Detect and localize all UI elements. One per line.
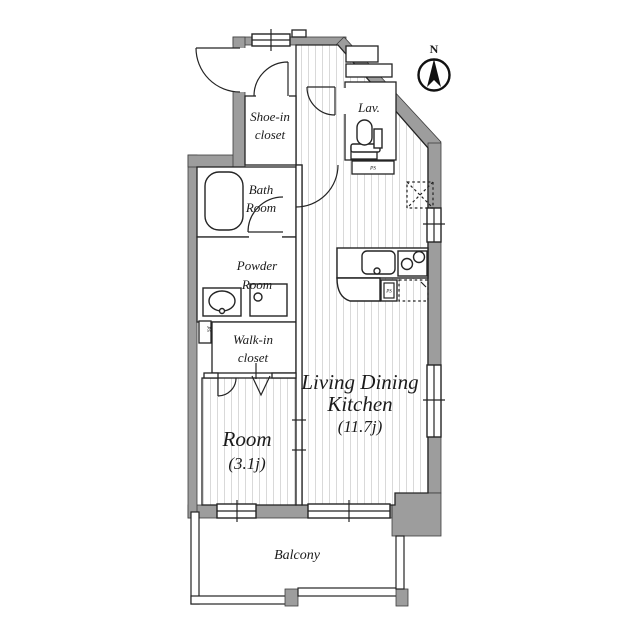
ldk-label-1: Living Dining bbox=[300, 370, 418, 394]
storage-box-lower bbox=[346, 64, 392, 77]
bath-door-gap bbox=[249, 235, 282, 240]
bath-room-label-1: Bath bbox=[249, 182, 274, 197]
balcony-rail-right bbox=[396, 536, 404, 589]
powder-room-label-1: Powder bbox=[236, 258, 278, 273]
washbasin-faucet-icon bbox=[220, 309, 225, 314]
walk-in-closet-label-2: closet bbox=[238, 350, 269, 365]
ldk-size-label: (11.7j) bbox=[338, 417, 383, 436]
storage-box-upper bbox=[346, 46, 378, 62]
counter-return bbox=[337, 278, 380, 301]
wall-right bbox=[428, 143, 441, 493]
balcony-post-left bbox=[285, 589, 298, 606]
washing-machine-knob-icon bbox=[254, 293, 262, 301]
room-ldk-wall bbox=[296, 165, 302, 505]
balcony-label: Balcony bbox=[274, 548, 321, 563]
powder-room-label-2: Room bbox=[241, 277, 272, 292]
ps-shaft-left bbox=[199, 321, 211, 343]
ps-label-kitchen: PS bbox=[385, 290, 392, 295]
bathtub-icon bbox=[205, 172, 243, 230]
walk-in-closet-room bbox=[212, 322, 296, 373]
toilet-tank-icon bbox=[374, 129, 382, 148]
ldk-label-2: Kitchen bbox=[326, 392, 392, 416]
room-top-wall-left bbox=[204, 373, 218, 378]
wall-left-lower bbox=[188, 155, 197, 518]
lav-label: Lav. bbox=[357, 100, 380, 115]
shoe-in-closet-label-1: Shoe-in bbox=[250, 109, 290, 124]
toilet-bowl-icon bbox=[357, 120, 372, 145]
lav-door-gap bbox=[343, 88, 348, 114]
room-label: Room bbox=[222, 427, 272, 451]
kitchen-faucet-icon bbox=[374, 268, 380, 274]
north-label: N bbox=[430, 42, 439, 56]
ps-label-lav: PS bbox=[369, 166, 376, 172]
entrance-door-gap bbox=[231, 48, 247, 92]
stove-burner-2-icon bbox=[414, 252, 425, 263]
wall-bottom-right-mass bbox=[392, 493, 441, 536]
room-top-wall-right bbox=[272, 373, 296, 378]
walk-in-closet-label-1: Walk-in bbox=[233, 332, 273, 347]
shoe-closet-door-gap bbox=[256, 94, 289, 99]
stove-burner-1-icon bbox=[402, 259, 413, 270]
bath-room-label-2: Room bbox=[245, 200, 276, 215]
ps-label-left: PS bbox=[205, 325, 210, 332]
floor-plan-svg: N Shoe-in closet Lav. Bath Room Powder R… bbox=[0, 0, 640, 640]
balcony-rail-bottom-left bbox=[191, 596, 288, 604]
balcony-rail-left bbox=[191, 512, 199, 604]
balcony-rail-bottom-right bbox=[298, 588, 398, 596]
room-size-label: (3.1j) bbox=[228, 454, 266, 473]
floor-plan-canvas: N Shoe-in closet Lav. Bath Room Powder R… bbox=[0, 0, 640, 640]
balcony-post-right bbox=[396, 589, 408, 606]
top-protrusion bbox=[292, 30, 306, 37]
shoe-in-closet-label-2: closet bbox=[255, 127, 286, 142]
